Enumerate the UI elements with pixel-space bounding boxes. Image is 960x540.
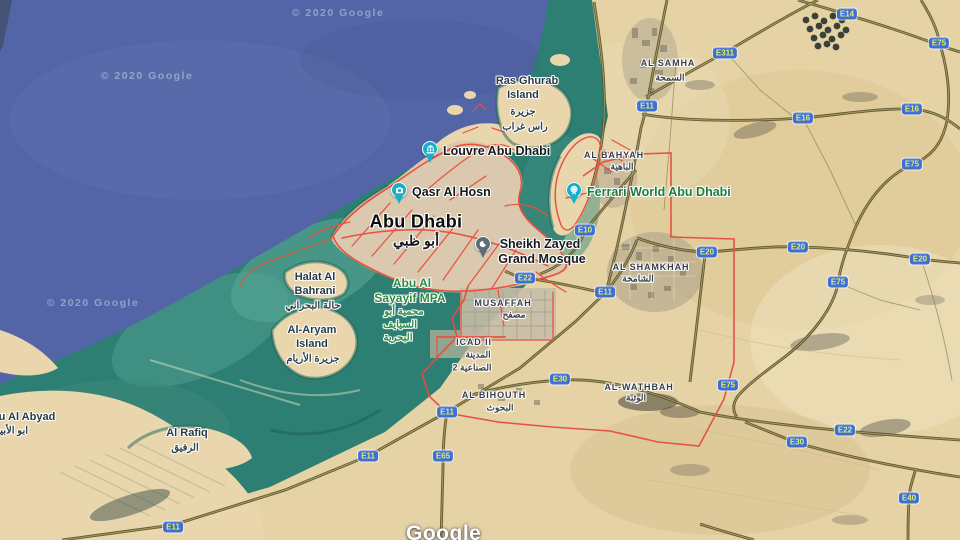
copyright-watermark: © 2020 Google [47, 297, 140, 309]
road-shield-e11: E11 [637, 101, 657, 112]
city-label-abu-dhabi-arabic: أبو ظبي [393, 233, 439, 250]
mpa-label-line1[interactable]: Abu Al [393, 276, 431, 290]
road-shield-e20: E20 [910, 254, 930, 265]
mpa-label-line2: Sayayif MPA [374, 291, 445, 305]
island-ras-ghurab-line2: Island [507, 89, 539, 101]
road-shield-e22: E22 [835, 425, 855, 436]
road-shield-e30: E30 [787, 437, 807, 448]
island-al-aryam-line2: Island [296, 338, 328, 350]
road-shield-e20: E20 [788, 242, 808, 253]
crescent-icon [479, 240, 488, 249]
qasr-al-hosn-pin[interactable] [391, 182, 407, 205]
map-canvas[interactable]: © 2020 Google © 2020 Google © 2020 Googl… [0, 0, 960, 540]
sheikh-zayed-mosque-label-line1[interactable]: Sheikh Zayed [500, 237, 581, 251]
locality-musaffah[interactable]: MUSAFFAH [474, 298, 531, 308]
island-abu-al-abyad-arabic: ابو الأبيض [0, 426, 28, 437]
road-shield-e10: E10 [575, 225, 595, 236]
road-shield-e11: E11 [437, 407, 457, 418]
road-shield-e20: E20 [697, 247, 717, 258]
locality-al-samha-arabic: السمحة [655, 73, 684, 84]
locality-al-bihouth[interactable]: AL BIHOUTH [462, 390, 526, 400]
mpa-label-arabic3: البحرية [384, 333, 413, 344]
locality-icad-ii[interactable]: ICAD II [456, 337, 492, 347]
road-shield-e11: E11 [595, 287, 615, 298]
road-shield-e11: E11 [163, 522, 183, 533]
google-logo[interactable]: Google [406, 522, 481, 540]
road-shield-e16: E16 [902, 104, 922, 115]
island-ras-ghurab-arabic1: جزيرة [510, 107, 535, 118]
island-ras-ghurab-line1[interactable]: Ras Ghurab [496, 75, 558, 87]
locality-al-bihouth-arabic: البحوث [487, 403, 514, 414]
island-ras-ghurab-arabic2: راس غراب [502, 122, 548, 133]
road-shield-e11: E11 [358, 451, 378, 462]
locality-icad-ii-arabic1: المدينة [465, 350, 490, 361]
copyright-watermark: © 2020 Google [101, 70, 194, 82]
island-halat-al-bahrani-line2: Bahrani [295, 285, 336, 297]
road-shield-e40: E40 [899, 493, 919, 504]
road-shield-e311: E311 [713, 48, 737, 59]
locality-al-shamkhah[interactable]: AL SHAMKHAH [613, 262, 690, 272]
ferrari-world-pin[interactable] [566, 182, 582, 205]
island-halat-al-bahrani-arabic: حالة البحراني [285, 301, 340, 312]
island-abu-al-abyad[interactable]: Abu Al Abyad [0, 411, 55, 423]
camera-icon [395, 186, 404, 195]
ferrari-world-label[interactable]: Ferrari World Abu Dhabi [587, 185, 731, 199]
island-halat-al-bahrani-line1[interactable]: Halat Al [295, 271, 336, 283]
museum-icon [426, 145, 435, 154]
louvre-abu-dhabi-pin[interactable] [422, 141, 438, 164]
road-shield-e75: E75 [929, 38, 949, 49]
sheikh-zayed-mosque-label-line2[interactable]: Grand Mosque [498, 252, 586, 266]
qasr-al-hosn-label[interactable]: Qasr Al Hosn [412, 185, 491, 199]
island-al-aryam-line1[interactable]: Al-Aryam [288, 324, 337, 336]
road-shield-e75: E75 [828, 277, 848, 288]
locality-al-samha[interactable]: AL SAMHA [641, 58, 696, 68]
road-shield-e16: E16 [793, 113, 813, 124]
sheikh-zayed-mosque-pin[interactable] [475, 236, 491, 259]
locality-al-bahyah[interactable]: AL BAHYAH [584, 150, 644, 160]
city-label-abu-dhabi[interactable]: Abu Dhabi [370, 212, 463, 233]
island-al-rafiq-arabic: الرفيق [171, 443, 198, 454]
locality-al-bahyah-arabic: الباهية [611, 162, 634, 173]
ferris-wheel-icon [569, 185, 579, 195]
road-shield-e75: E75 [902, 159, 922, 170]
road-shield-e65: E65 [433, 451, 453, 462]
locality-icad-ii-arabic2: الصناعية 2 [453, 363, 492, 374]
locality-musaffah-arabic: مصفح [503, 310, 526, 321]
copyright-watermark: © 2020 Google [292, 7, 385, 19]
locality-al-shamkhah-arabic: الشامخة [622, 274, 653, 285]
island-al-rafiq[interactable]: Al Rafiq [166, 427, 208, 439]
road-shield-e22: E22 [515, 273, 535, 284]
mpa-label-arabic2: السيايف [383, 320, 417, 331]
mpa-label-arabic1: محمية أبو [384, 307, 423, 318]
road-shield-e30: E30 [550, 374, 570, 385]
locality-al-wathbah[interactable]: AL-WATHBAH [604, 382, 673, 392]
road-shield-e14: E14 [837, 9, 857, 20]
island-al-aryam-arabic: جزيرة الأريام [286, 354, 339, 365]
louvre-abu-dhabi-label[interactable]: Louvre Abu Dhabi [443, 144, 550, 158]
locality-al-wathbah-arabic: الوثبة [626, 393, 646, 404]
road-shield-e75: E75 [718, 380, 738, 391]
